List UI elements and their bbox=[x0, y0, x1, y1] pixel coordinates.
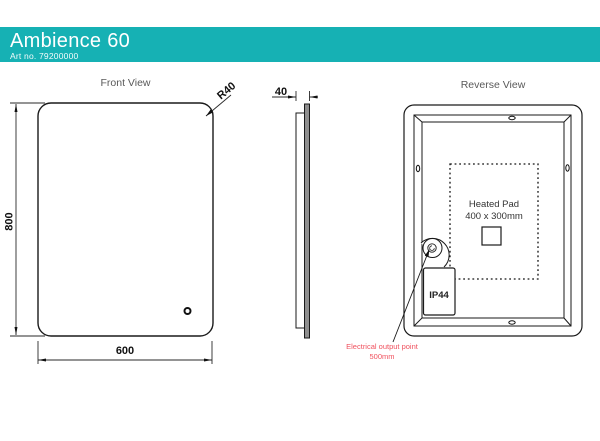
side-profile-drawing bbox=[272, 91, 318, 338]
height-dimension-label: 800 bbox=[4, 202, 17, 242]
depth-dimension-label: 40 bbox=[266, 86, 296, 99]
reverse-view-title: Reverse View bbox=[404, 79, 582, 91]
keyhole-left-icon bbox=[416, 165, 419, 171]
touch-sensor-dot bbox=[185, 308, 191, 314]
keyhole-top-icon bbox=[509, 116, 515, 119]
spec-sheet-page: Ambience 60 Art no. 79200000 bbox=[0, 0, 600, 441]
heated-pad-label: Heated Pad bbox=[450, 199, 538, 211]
width-dimension-label: 600 bbox=[95, 345, 155, 358]
frame-body-profile bbox=[296, 113, 305, 328]
mirror-glass-profile bbox=[305, 104, 310, 338]
electrical-note-line1: Electrical output point bbox=[332, 342, 432, 351]
ip-rating-label: IP44 bbox=[423, 290, 455, 302]
mirror-front-outline bbox=[38, 103, 213, 336]
heated-pad-size-label: 400 x 300mm bbox=[450, 211, 538, 223]
reverse-view-drawing bbox=[393, 105, 582, 342]
front-view-drawing bbox=[10, 95, 231, 364]
front-view-title: Front View bbox=[38, 77, 213, 89]
keyhole-right-icon bbox=[566, 165, 569, 171]
heated-pad-connector-square bbox=[482, 227, 501, 245]
keyhole-bottom-icon bbox=[509, 321, 515, 324]
electrical-note-line2: 500mm bbox=[332, 352, 432, 361]
